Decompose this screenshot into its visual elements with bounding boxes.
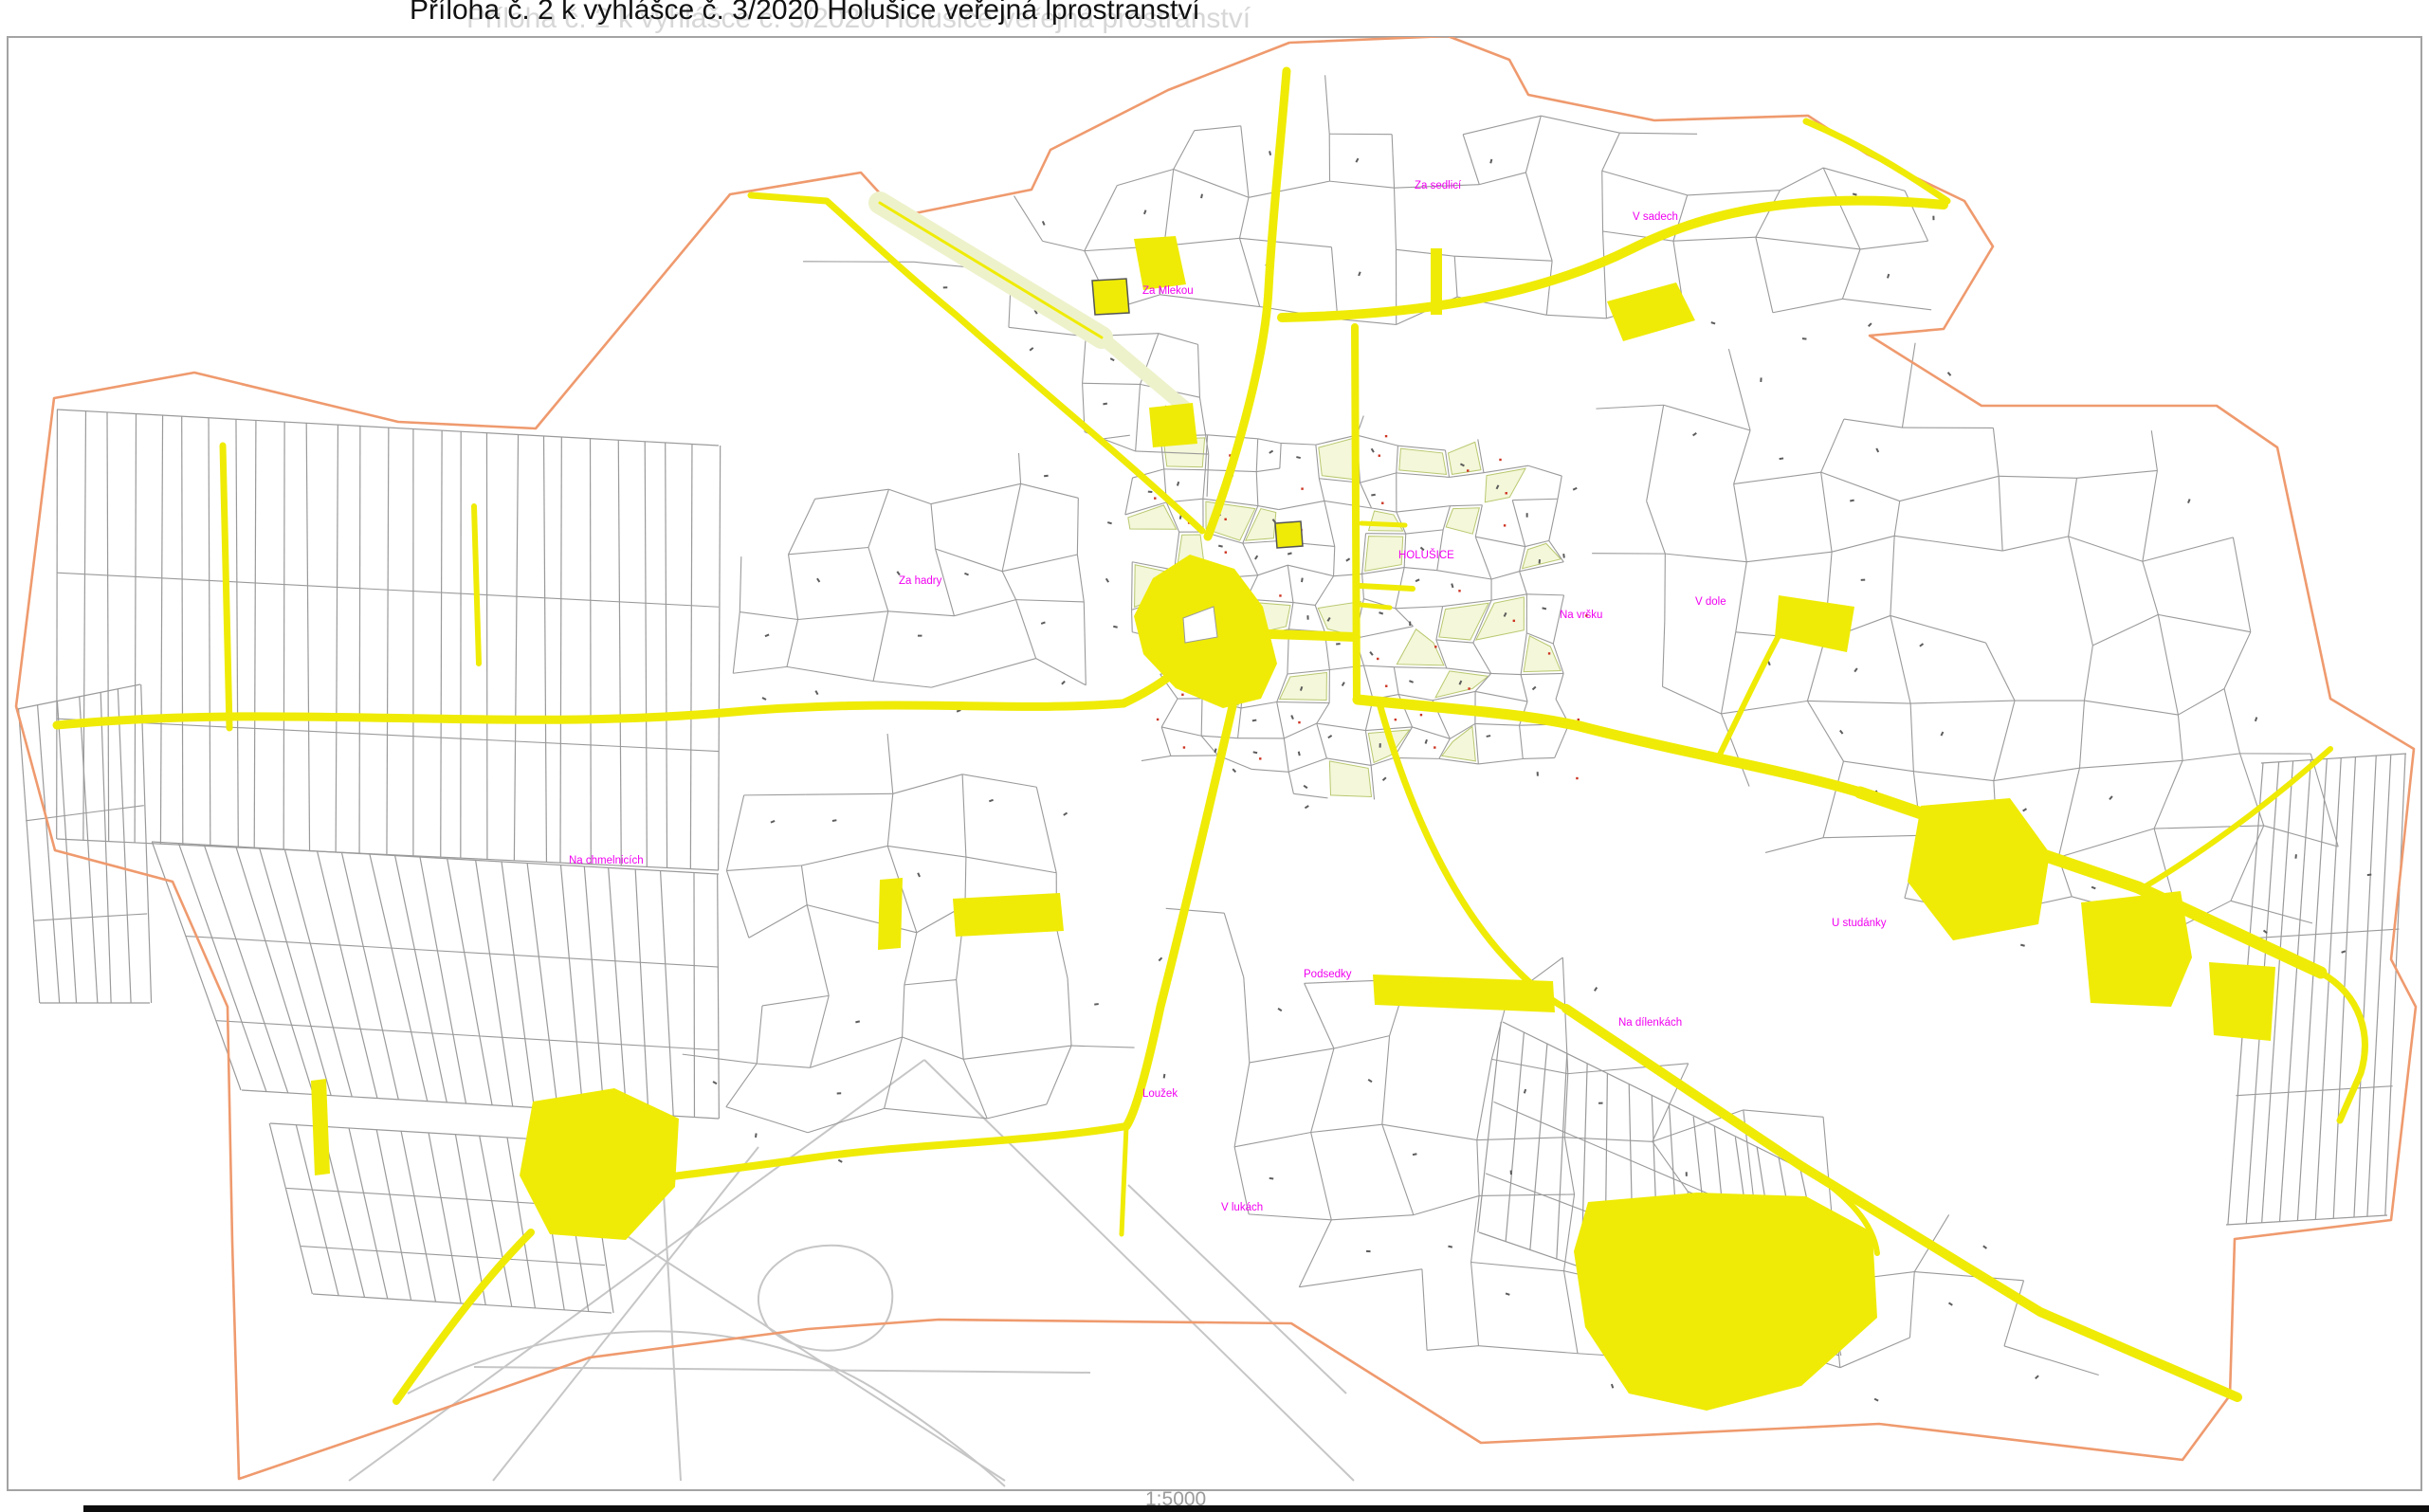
bottom-window-edge: [83, 1505, 2429, 1512]
place-label: Na vršku: [1560, 610, 1602, 621]
place-label: Loužek: [1142, 1088, 1178, 1100]
place-label: V sadech: [1633, 211, 1678, 223]
place-label: V dole: [1695, 596, 1726, 608]
place-label: V lukách: [1221, 1202, 1263, 1213]
map-frame: [8, 37, 2421, 1490]
place-label: Podsedky: [1304, 969, 1352, 980]
place-label: Za Mlekou: [1142, 285, 1194, 297]
place-label: HOLUŠICE: [1398, 549, 1454, 561]
place-label: Za sedlicí: [1415, 180, 1462, 191]
place-label: U studánky: [1832, 918, 1887, 929]
cadastral-map: Za sedlicíV sadechZa MlekouHOLUŠICEZa ha…: [0, 0, 2429, 1512]
place-label: Na chmelnicích: [569, 855, 644, 866]
place-label: Za hadry: [899, 575, 942, 587]
place-label: Na dílenkách: [1618, 1017, 1682, 1029]
